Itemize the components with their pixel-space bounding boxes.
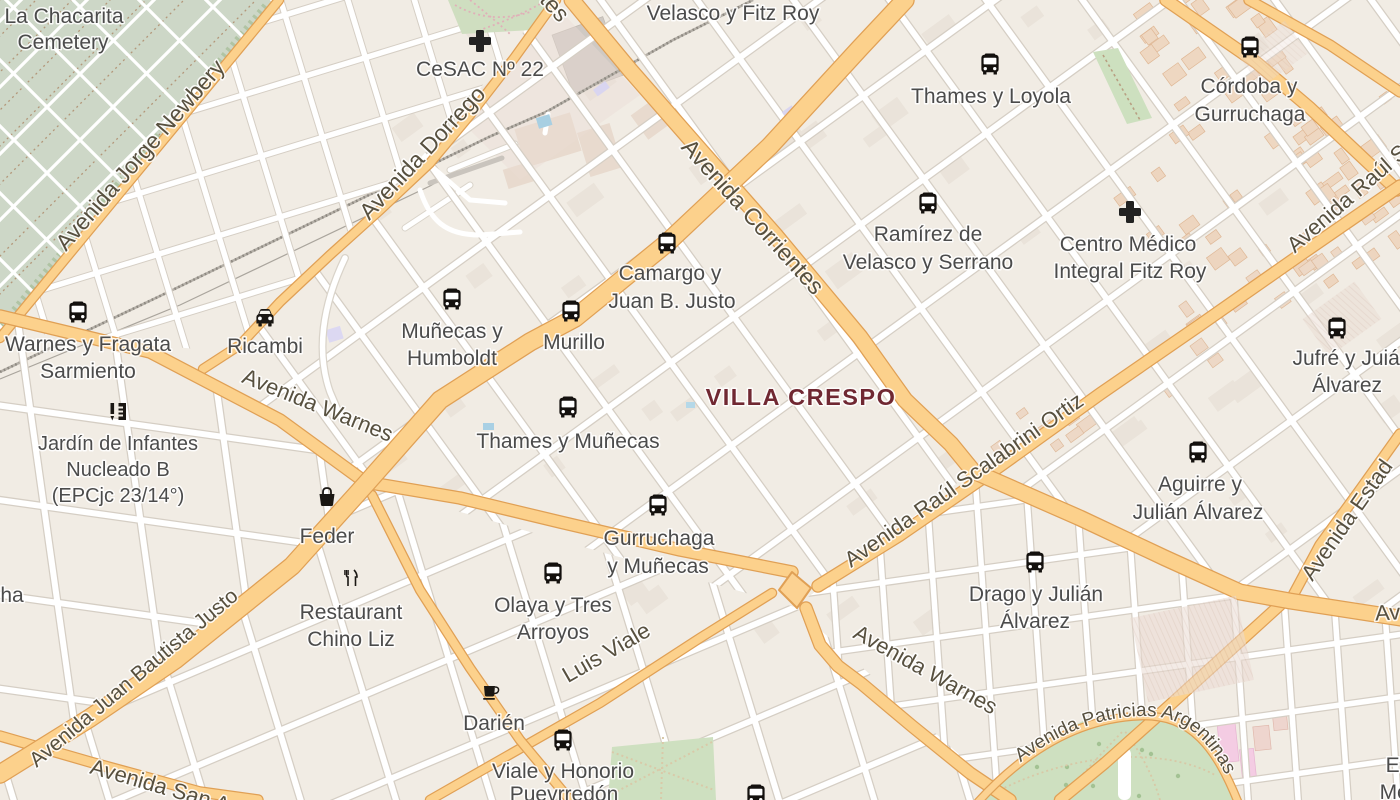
svg-text:Thames y Loyola: Thames y Loyola xyxy=(911,85,1071,108)
svg-text:Centro Médico: Centro Médico xyxy=(1060,233,1197,256)
svg-text:Córdoba y: Córdoba y xyxy=(1201,75,1298,98)
svg-text:Cemetery: Cemetery xyxy=(17,31,109,54)
svg-text:Darién: Darién xyxy=(463,712,525,735)
svg-text:y Muñecas: y Muñecas xyxy=(607,555,709,578)
svg-text:Muñecas y: Muñecas y xyxy=(401,320,503,343)
svg-text:Av: Av xyxy=(1374,599,1400,625)
svg-text:CeSAC Nº 22: CeSAC Nº 22 xyxy=(416,58,544,81)
svg-text:Álvarez: Álvarez xyxy=(1312,374,1382,397)
svg-text:Nucleado B: Nucleado B xyxy=(66,459,169,481)
svg-text:Jardín de Infantes: Jardín de Infantes xyxy=(38,433,198,455)
svg-text:Jufré y Juián: Jufré y Juián xyxy=(1292,347,1400,370)
svg-text:Puevrredón: Puevrredón xyxy=(510,783,619,800)
svg-text:Ramírez de: Ramírez de xyxy=(874,223,983,246)
svg-text:Juan B. Justo: Juan B. Justo xyxy=(608,290,735,313)
svg-text:Drago y Julián: Drago y Julián xyxy=(969,583,1103,606)
svg-text:Gurruchaga: Gurruchaga xyxy=(1195,103,1306,126)
svg-text:La Chacarita: La Chacarita xyxy=(4,5,123,28)
svg-text:Restaurant: Restaurant xyxy=(300,601,403,624)
svg-text:VILLA CRESPO: VILLA CRESPO xyxy=(706,384,897,410)
svg-text:Chino Liz: Chino Liz xyxy=(307,628,395,651)
svg-text:Murillo: Murillo xyxy=(543,331,605,354)
svg-text:Feder: Feder xyxy=(300,525,355,548)
svg-text:Álvarez: Álvarez xyxy=(1000,610,1070,633)
svg-text:Julián Álvarez: Julián Álvarez xyxy=(1133,501,1264,524)
svg-text:ha: ha xyxy=(0,584,24,607)
svg-text:Integral Fitz Roy: Integral Fitz Roy xyxy=(1054,260,1207,283)
svg-text:Gurruchaga: Gurruchaga xyxy=(604,527,715,550)
svg-text:Sarmiento: Sarmiento xyxy=(40,360,136,383)
svg-text:Aguirre y: Aguirre y xyxy=(1158,473,1243,496)
svg-text:Velasco y Serrano: Velasco y Serrano xyxy=(843,251,1013,274)
svg-text:El: El xyxy=(1386,754,1400,777)
svg-text:(EPCjc 23/14°): (EPCjc 23/14°) xyxy=(52,485,185,507)
svg-text:Warnes y Fragata: Warnes y Fragata xyxy=(5,333,171,356)
svg-text:Ricambi: Ricambi xyxy=(227,335,303,358)
svg-text:Méd: Méd xyxy=(1380,781,1400,800)
svg-text:Viale y Honorio: Viale y Honorio xyxy=(492,760,634,783)
svg-text:Camargo y: Camargo y xyxy=(619,262,722,285)
svg-text:Humboldt: Humboldt xyxy=(407,347,497,370)
svg-text:Velasco y Fitz Roy: Velasco y Fitz Roy xyxy=(647,2,820,25)
svg-text:Arroyos: Arroyos xyxy=(517,621,589,644)
svg-text:Thames y Muñecas: Thames y Muñecas xyxy=(476,430,659,453)
svg-text:Olaya y Tres: Olaya y Tres xyxy=(494,594,612,617)
